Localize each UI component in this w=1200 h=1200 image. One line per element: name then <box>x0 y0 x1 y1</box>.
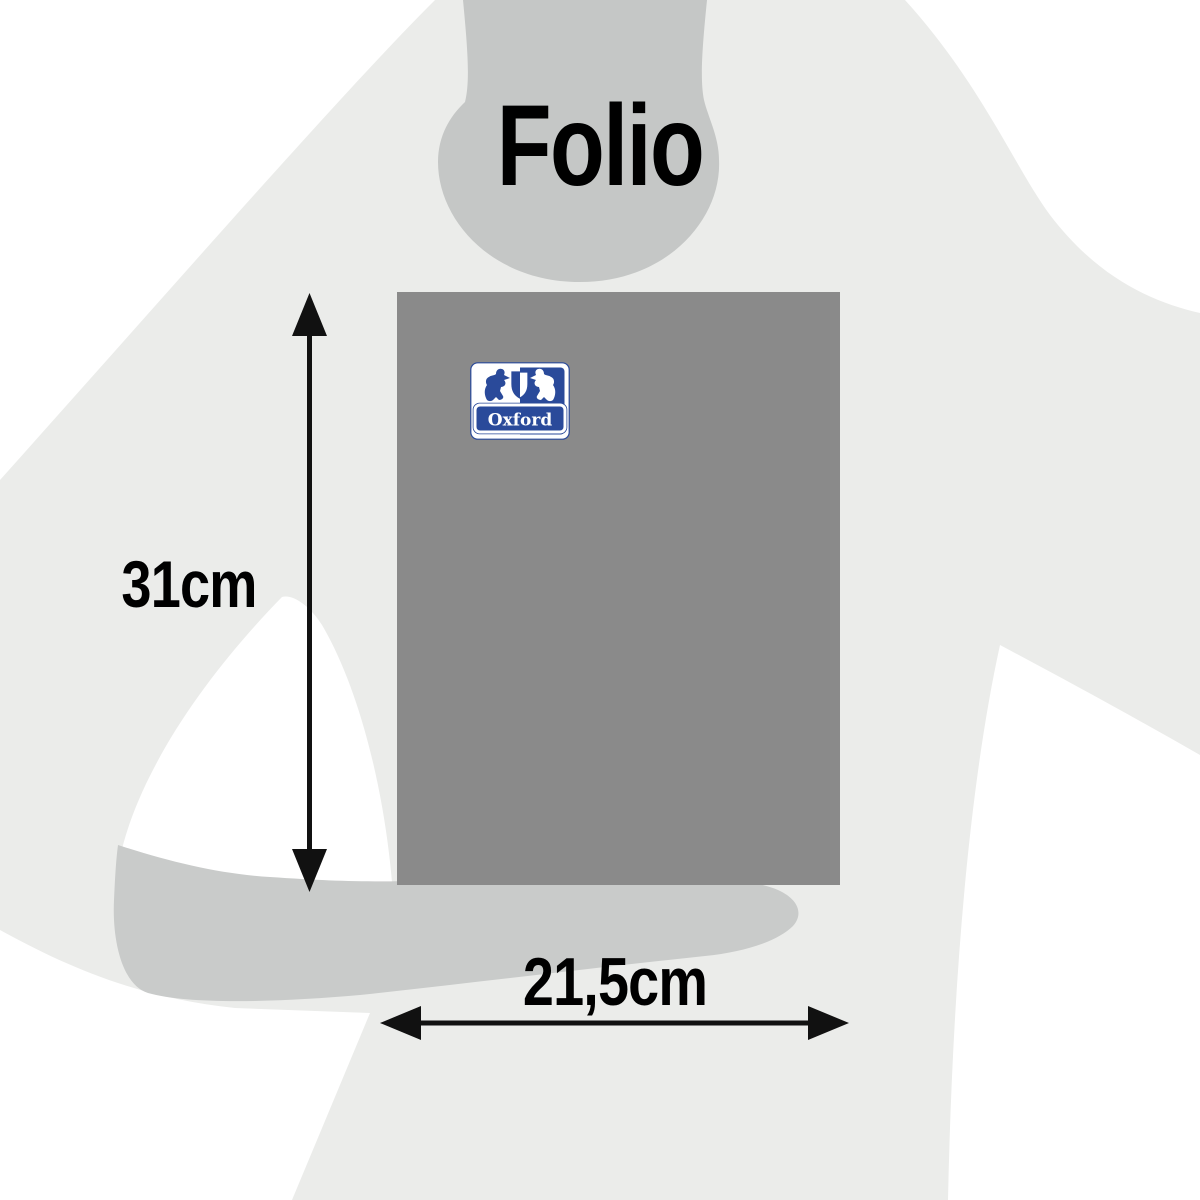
product-size-diagram: Oxford Folio 31cm 21,5cm <box>0 0 1200 1200</box>
arrow-down-icon <box>292 849 327 892</box>
arrow-right-icon <box>808 1006 849 1040</box>
arrow-left-icon <box>380 1006 421 1040</box>
arrow-up-icon <box>292 293 327 336</box>
width-label: 21,5cm <box>492 948 738 1016</box>
height-label: 31cm <box>66 551 312 617</box>
page-title: Folio <box>132 89 1068 204</box>
